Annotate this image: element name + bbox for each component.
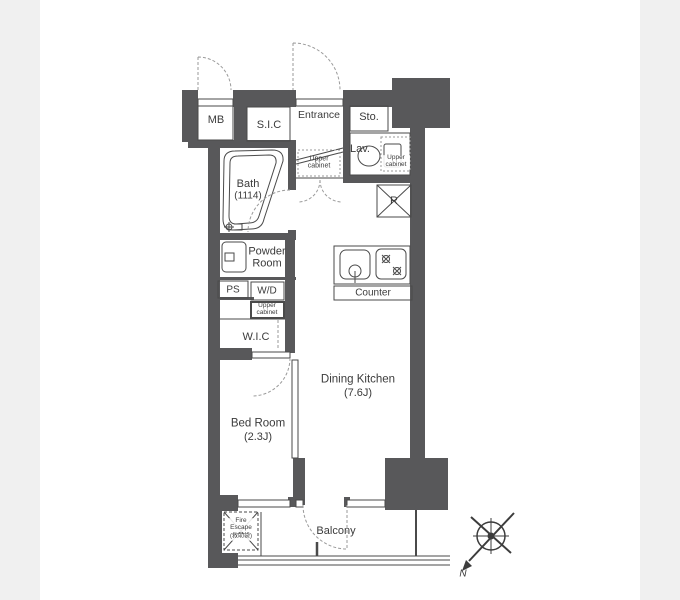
compass-rose [462,513,514,571]
ps-box [218,281,248,298]
toilet-icon [358,144,401,167]
lav-upper-cabinet-box [381,137,410,171]
entrance-door-swing [293,43,340,90]
vanity-sink-icon [222,242,246,272]
balcony-door-swing [303,505,347,549]
balcony-railing [238,556,450,565]
kitchen-sink-icon [340,250,370,283]
fixtures [222,144,406,550]
entrance-threshold [296,99,343,106]
corridor-double-door-swing [298,180,342,202]
fire-escape-hatch [224,512,258,550]
compass-north-arrow [462,560,472,571]
floor-plan-drawing [0,0,680,600]
bath-door-swing [248,190,290,232]
wd-box [251,282,284,300]
dk-window [347,500,385,507]
laundry-upper-cabinet-box [251,302,284,318]
refrigerator-space [377,185,411,217]
bedroom-window [238,500,290,507]
mb-door-swing [198,57,231,90]
sliding-door [292,360,298,458]
mb-closet-outline [198,106,233,140]
bedroom-door-swing [252,358,290,396]
storage-outline [350,106,388,131]
sic-outline [247,107,290,141]
floor-plan: MB S.I.C Entrance Sto. Lav. Upper cabine… [0,0,680,600]
wic-door-threshold [252,352,290,358]
mb-door-threshold [198,99,233,106]
dk-window-stub [296,500,303,507]
bathtub-icon [223,150,283,232]
stove-icon [376,249,406,279]
